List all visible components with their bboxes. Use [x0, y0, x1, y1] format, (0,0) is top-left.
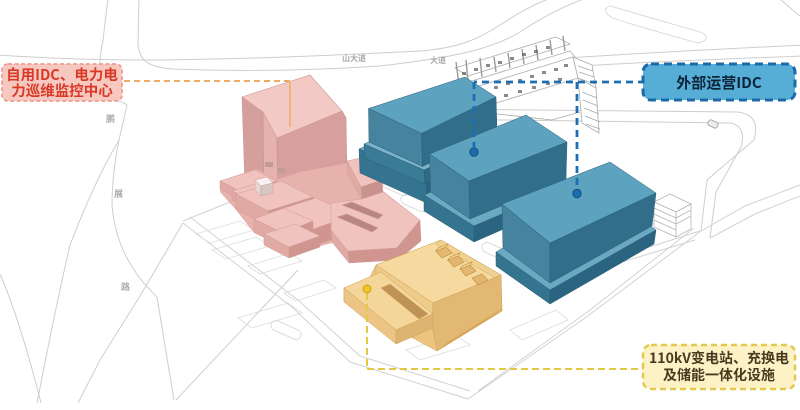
svg-text:展: 展: [114, 187, 123, 200]
svg-text:鹏: 鹏: [106, 112, 115, 125]
svg-text:外部运营IDC: 外部运营IDC: [676, 72, 762, 93]
svg-text:山大道: 山大道: [342, 53, 366, 64]
svg-text:路: 路: [121, 280, 130, 293]
svg-text:大道: 大道: [430, 55, 446, 66]
svg-text:及储能一体化设施: 及储能一体化设施: [663, 365, 775, 385]
svg-text:力巡维监控中心: 力巡维监控中心: [11, 80, 113, 101]
